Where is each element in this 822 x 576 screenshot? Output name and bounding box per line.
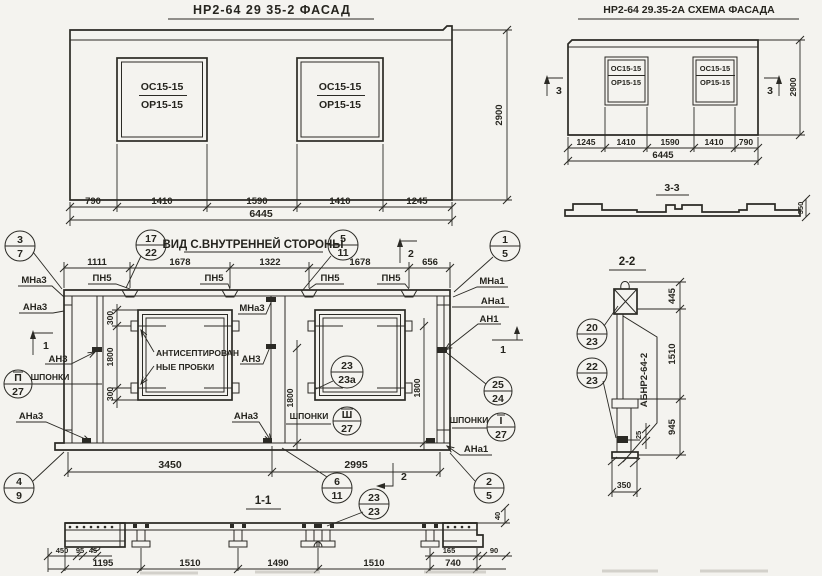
s11-dim: 45 xyxy=(89,546,97,555)
s11-dim: 1195 xyxy=(93,558,114,569)
balloon-2-5: 2 5 xyxy=(474,473,504,503)
schema-dim-height: 2900 xyxy=(788,77,798,96)
balloon-bottom: 5 xyxy=(502,248,508,260)
win-dim: 1800 xyxy=(285,388,295,407)
loop-label: ПН5 xyxy=(205,273,225,284)
schema-cut-marker-right-arrow xyxy=(776,75,782,84)
rebar-label: АНа3 xyxy=(234,411,258,422)
s11-ribs xyxy=(132,530,439,547)
loop-label-leader xyxy=(88,284,130,289)
drawing-canvas: НР2-64 29 35-2 ФАСАД ОС15-15 ОР15-15 ОС1… xyxy=(0,0,822,576)
schema-dim: 790 xyxy=(739,137,753,147)
balloon-bottom: 27 xyxy=(341,423,353,435)
facade-window-right-label-top: ОС15-15 xyxy=(319,81,362,93)
balloon-top: 25 xyxy=(492,379,504,391)
s11-dim: 1510 xyxy=(179,558,200,569)
rebar-label: АНа3 xyxy=(19,411,43,422)
schema-dim: 1590 xyxy=(661,137,680,147)
balloon-bottom: 11 xyxy=(337,247,348,259)
s11-dim: 165 xyxy=(443,546,456,555)
section-2-2: 2-2 445 1510 945 25 350 20 23 22 23 АБНР… xyxy=(577,256,686,497)
s11-right-box-rebar xyxy=(447,526,471,529)
loop-label: ПН5 xyxy=(382,273,402,284)
balloon-1-5: 1 5 xyxy=(490,231,520,261)
s11-dim: 1510 xyxy=(363,558,384,569)
s22-top-block-hatch xyxy=(614,289,637,314)
plug-axis-lines xyxy=(315,326,405,388)
balloon-top: 17 xyxy=(145,233,157,245)
cut-marker-1-left-arrow xyxy=(30,330,36,339)
rebar-label: АН3 xyxy=(48,354,67,365)
anchor-mark xyxy=(266,344,276,349)
balloon-III-27: Ш 27 xyxy=(333,407,361,435)
keys-label: ШПОНКИ xyxy=(290,411,329,421)
drawing-sheet: НР2-64 29 35-2 ФАСАД ОС15-15 ОР15-15 ОС1… xyxy=(0,0,822,576)
balloon-top: 2 xyxy=(486,476,492,488)
section-2-2-title: 2-2 xyxy=(619,256,636,268)
balloon-bottom: 23 xyxy=(586,336,598,348)
schema-window-right-label-bottom: ОР15-15 xyxy=(700,78,730,87)
balloon-6-11: 6 11 xyxy=(322,473,352,503)
balloon-bottom: 27 xyxy=(495,429,507,441)
plug-note-line2: НЫЕ ПРОБКИ xyxy=(156,362,214,372)
facade-title: НР2-64 29 35-2 ФАСАД xyxy=(193,3,351,17)
inner-bottom-dim: 2995 xyxy=(344,459,368,471)
s22-foot xyxy=(612,452,638,458)
win-left-dim-lines xyxy=(112,304,138,408)
balloon-top: 22 xyxy=(586,361,598,373)
win-dim: 1800 xyxy=(105,347,115,366)
schema-window-right-label-top: ОС15-15 xyxy=(700,64,730,73)
inner-top-dim: 656 xyxy=(422,257,438,268)
loop-label-leader xyxy=(377,284,409,289)
balloon-17-22: 17 22 xyxy=(136,230,166,260)
balloon-bottom: 24 xyxy=(492,393,504,405)
balloon-3-7: 3 7 xyxy=(5,231,35,261)
s11-dim: 95 xyxy=(76,546,84,555)
facade-panel-outline xyxy=(70,26,452,200)
facade-dim: 1590 xyxy=(246,196,267,207)
inner-window-right xyxy=(315,310,405,400)
cut-marker-2-bottom-line xyxy=(379,463,393,486)
s11-dim: 740 xyxy=(445,558,461,569)
balloon-bottom: 27 xyxy=(12,386,24,398)
schema-dim: 1410 xyxy=(705,137,724,147)
balloon-bottom: 5 xyxy=(486,490,492,502)
rebar-label: МНа3 xyxy=(239,303,264,314)
schema-dim: 1410 xyxy=(617,137,636,147)
schema-view: НР2-64 29.35-2А СХЕМА ФАСАДА ОС15-15 ОР1… xyxy=(544,4,810,221)
balloon-top: 4 xyxy=(16,476,22,488)
schema-dim: 1245 xyxy=(577,137,596,147)
section-3-3-title: 3-3 xyxy=(664,182,679,194)
cut-marker-2-bottom-label: 2 xyxy=(401,471,407,483)
balloon-top: 3 xyxy=(17,234,23,246)
s11-rib-rebar xyxy=(133,524,438,528)
s11-dim: 450 xyxy=(56,546,69,555)
rebar-label: МНа1 xyxy=(479,276,505,287)
balloon-20-23: 20 23 xyxy=(577,319,607,349)
win-mid-dim-ticks xyxy=(293,322,428,447)
s22-dim: 1510 xyxy=(667,343,678,364)
loop-label-leader xyxy=(200,284,230,289)
balloon-top: 5 xyxy=(340,233,346,245)
balloon-4-9: 4 9 xyxy=(4,473,34,503)
inner-view: ВИД С.ВНУТРЕННЕЙ СТОРОНЫ 1111 1678 1322 … xyxy=(4,230,523,526)
inner-top-dim: 1678 xyxy=(349,257,370,268)
keys-label: ШПОНКИ xyxy=(31,372,70,382)
facade-dim: 790 xyxy=(85,196,101,207)
win-dim: 300 xyxy=(105,387,115,401)
schema-cut-marker-left-arrow xyxy=(544,75,550,84)
section-1-1: 40 450 95 45 165 90 1195 1510 1490 1510 … xyxy=(44,504,512,573)
rebar-label-leader xyxy=(445,324,501,350)
balloon-top: 6 xyxy=(334,476,340,488)
s22-dim25: 25 xyxy=(634,431,643,439)
balloon-top: I xyxy=(500,415,503,427)
s22-wall xyxy=(617,314,623,399)
cut-marker-2-top-arrow xyxy=(397,238,403,247)
plug xyxy=(405,321,412,331)
schema-panel-outline xyxy=(568,40,758,135)
balloon-bottom: 23 xyxy=(586,375,598,387)
inner-top-dim: 1678 xyxy=(169,257,190,268)
schema-cut-marker-left-label: 3 xyxy=(556,85,562,97)
balloon-II-27: П 27 xyxy=(4,370,32,398)
section-3-3-profile xyxy=(565,204,800,216)
inner-top-dim: 1322 xyxy=(259,257,280,268)
schema-title: НР2-64 29.35-2А СХЕМА ФАСАДА xyxy=(603,4,775,16)
section-3-3-depth: 350 xyxy=(796,202,805,215)
balloon-top: П xyxy=(14,372,22,384)
plug xyxy=(131,383,138,393)
balloon-top: 1 xyxy=(502,234,508,246)
plug xyxy=(131,321,138,331)
schema-dim-total: 6445 xyxy=(652,150,674,161)
balloon-top: 23 xyxy=(341,360,353,372)
s22-dim: 945 xyxy=(667,418,678,435)
s22-balloon-leaders xyxy=(603,306,618,438)
schema-window-left-label-bottom: ОР15-15 xyxy=(611,78,641,87)
balloon-23-23: 23 23 xyxy=(359,489,389,519)
cut-marker-1-left-label: 1 xyxy=(43,340,49,352)
facade-window-right-label-bottom: ОР15-15 xyxy=(319,99,361,111)
balloon-bottom: 11 xyxy=(331,490,342,502)
facade-view: НР2-64 29 35-2 ФАСАД ОС15-15 ОР15-15 ОС1… xyxy=(66,3,512,226)
s11-left-box-rebar xyxy=(69,526,114,529)
balloon-top: Ш xyxy=(342,409,353,421)
loop-label: ПН5 xyxy=(321,273,341,284)
facade-window-left-label-bottom: ОР15-15 xyxy=(141,99,183,111)
keys-label: ШПОНКИ xyxy=(450,415,489,425)
facade-dimension-ticks xyxy=(66,26,511,224)
balloon-top: 23 xyxy=(368,492,380,504)
inner-bottom-dim: 3450 xyxy=(158,459,182,471)
s11-dim: 1490 xyxy=(267,558,288,569)
plug xyxy=(308,321,315,331)
s22-dim350: 350 xyxy=(617,480,631,490)
s22-lower-wall xyxy=(617,408,631,452)
schema-window-left-label-top: ОС15-15 xyxy=(611,64,641,73)
s11-lip-label: 40 xyxy=(493,512,502,520)
rebar-label: АНа3 xyxy=(23,302,47,313)
facade-dim-height: 2900 xyxy=(494,104,505,125)
facade-window-left-label-top: ОС15-15 xyxy=(141,81,184,93)
balloon-bottom: 23 xyxy=(368,506,380,518)
facade-extension-lines xyxy=(70,30,512,226)
inner-title: ВИД С.ВНУТРЕННЕЙ СТОРОНЫ xyxy=(162,238,343,251)
s22-flange xyxy=(612,399,638,408)
section-1-1-title: 1-1 xyxy=(255,495,272,507)
loop-label-leader xyxy=(309,284,344,289)
plug xyxy=(405,383,412,393)
rebar-label: АН1 xyxy=(479,314,499,325)
facade-dim: 1410 xyxy=(151,196,172,207)
plug xyxy=(232,383,239,393)
balloon-bottom: 23а xyxy=(338,374,356,386)
cut-marker-2-bottom-arrow xyxy=(376,483,385,489)
s22-tag-label: АБНР2-64-2 xyxy=(639,353,650,407)
cut-marker-2-top-label: 2 xyxy=(408,248,414,260)
facade-dim: 1245 xyxy=(406,196,428,207)
balloon-I-27: I 27 xyxy=(487,413,515,441)
balloon-bottom: 7 xyxy=(17,248,23,260)
schema-cut-marker-right-label: 3 xyxy=(767,85,773,97)
balloon-top: 20 xyxy=(586,322,598,334)
win-dim: 1800 xyxy=(412,378,422,397)
s22-lifting-loop xyxy=(621,282,629,290)
rebar-label: АНа1 xyxy=(481,296,506,307)
balloon-5-11: 5 11 xyxy=(328,230,358,260)
facade-dim-total: 6445 xyxy=(249,208,273,220)
balloon-22-23: 22 23 xyxy=(577,358,607,388)
loop-label: ПН5 xyxy=(93,273,113,284)
s22-anchor xyxy=(617,436,628,443)
plug xyxy=(232,321,239,331)
s22-dim: 445 xyxy=(667,287,678,304)
balloon-bottom: 9 xyxy=(16,490,22,502)
s11-left-box xyxy=(65,523,125,547)
plug xyxy=(308,383,315,393)
balloon-25-24: 25 24 xyxy=(484,377,512,405)
rebar-label-leader xyxy=(16,422,90,441)
s11-dim: 90 xyxy=(490,546,498,555)
anchor-mark xyxy=(92,347,102,352)
facade-dim: 1410 xyxy=(329,196,350,207)
anchor-mark xyxy=(426,438,435,443)
inner-top-dim: 1111 xyxy=(87,257,107,268)
balloon-23-23a: 23 23а xyxy=(331,356,363,388)
win-dim: 300 xyxy=(105,311,115,325)
balloon-bottom: 22 xyxy=(145,247,157,259)
rebar-label: АН3 xyxy=(241,354,260,365)
rebar-label-leader xyxy=(18,286,64,297)
cut-marker-1-right-label: 1 xyxy=(500,344,506,356)
inner-window-right-frame xyxy=(320,315,401,396)
rebar-label: АНа1 xyxy=(464,444,489,455)
cut-marker-1-right-arrow xyxy=(514,326,520,334)
plug-note-line1: АНТИСЕПТИРОВАН xyxy=(156,348,239,358)
rebar-label: МНа3 xyxy=(21,275,46,286)
